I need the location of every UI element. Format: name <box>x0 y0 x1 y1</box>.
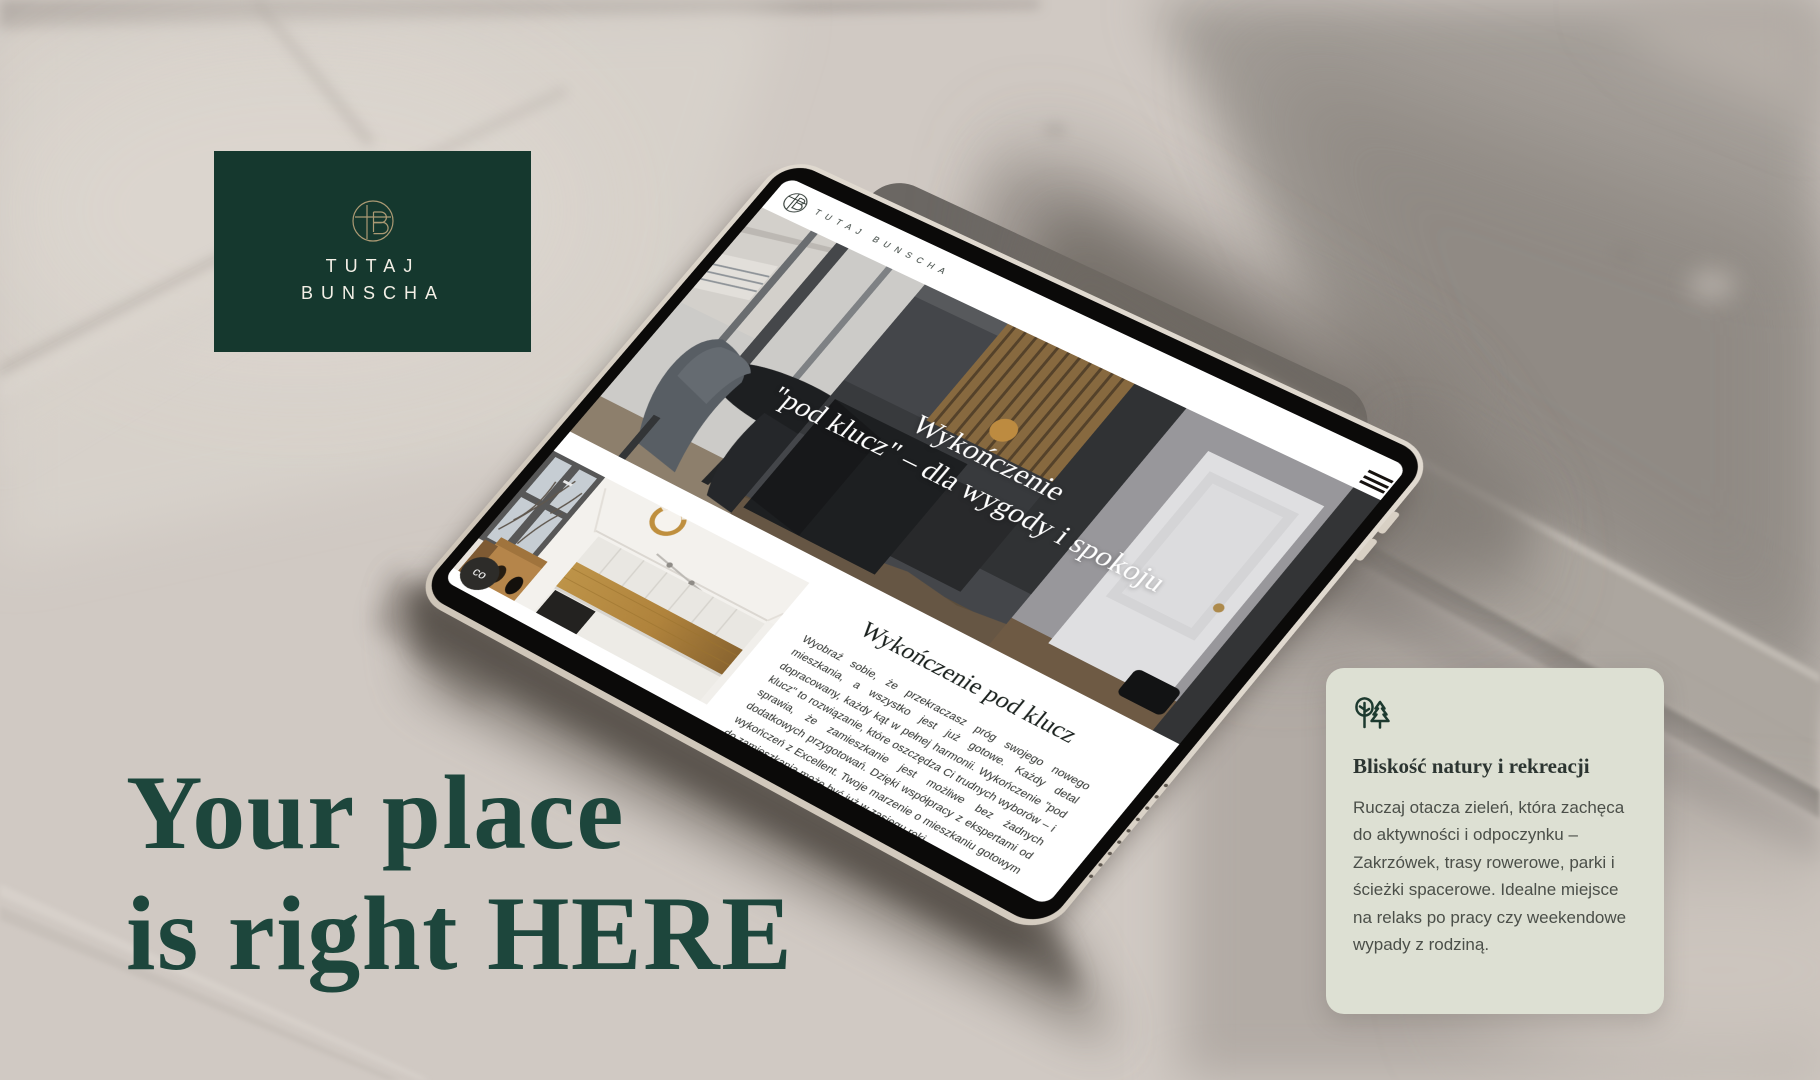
svg-text:TUTAJ: TUTAJ <box>326 256 421 276</box>
svg-text:BUNSCHA: BUNSCHA <box>301 283 445 303</box>
